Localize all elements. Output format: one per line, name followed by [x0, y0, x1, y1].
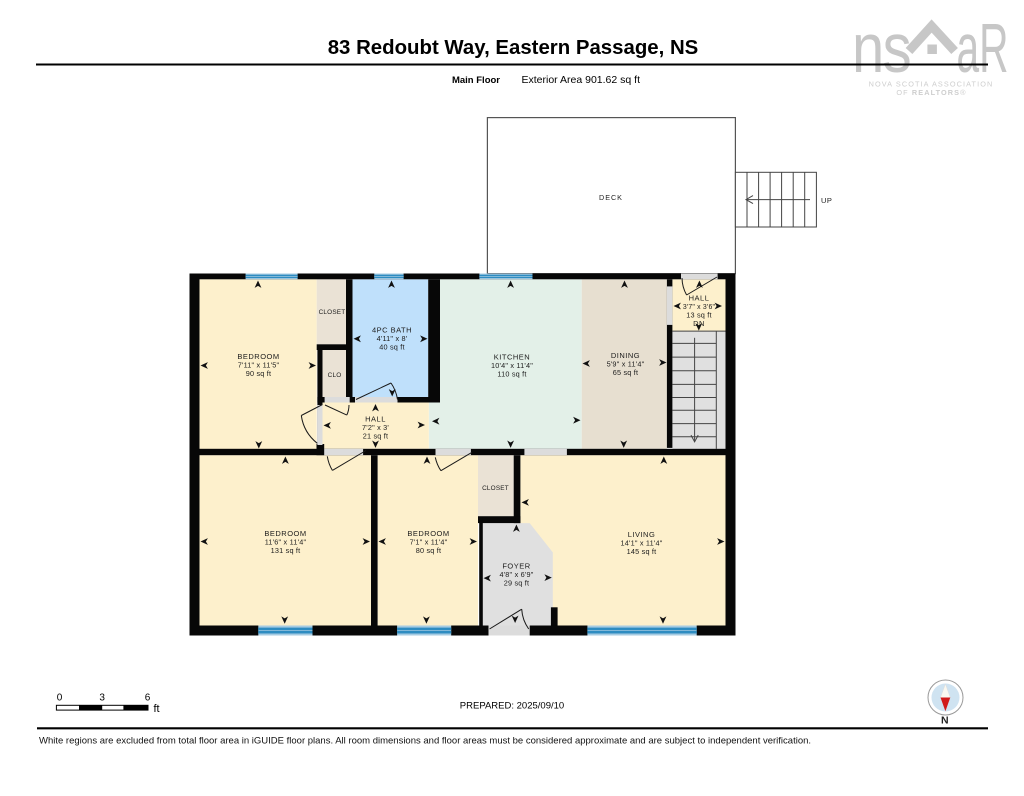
- svg-text:145 sq ft: 145 sq ft: [627, 547, 657, 556]
- svg-text:DECK: DECK: [599, 193, 623, 202]
- svg-text:21 sq ft: 21 sq ft: [363, 432, 389, 441]
- svg-text:CLO: CLO: [328, 372, 342, 379]
- svg-text:PREPARED: 2025/09/10: PREPARED: 2025/09/10: [460, 701, 564, 712]
- svg-text:110 sq ft: 110 sq ft: [497, 370, 526, 379]
- svg-text:CLOSET: CLOSET: [319, 309, 346, 316]
- svg-text:0: 0: [57, 693, 63, 704]
- svg-text:131 sq ft: 131 sq ft: [271, 546, 301, 555]
- svg-text:HALL: HALL: [689, 294, 710, 303]
- svg-text:29 sq ft: 29 sq ft: [504, 579, 530, 588]
- svg-text:CLOSET: CLOSET: [482, 485, 509, 492]
- svg-text:6: 6: [145, 693, 151, 704]
- svg-text:80 sq ft: 80 sq ft: [416, 546, 442, 555]
- svg-text:83 Redoubt Way, Eastern Passag: 83 Redoubt Way, Eastern Passage, NS: [328, 37, 699, 59]
- svg-text:UP: UP: [821, 196, 832, 205]
- svg-text:N: N: [941, 715, 949, 727]
- svg-text:Exterior Area 901.62 sq ft: Exterior Area 901.62 sq ft: [522, 74, 641, 86]
- svg-text:40 sq ft: 40 sq ft: [379, 343, 405, 352]
- svg-text:Main Floor: Main Floor: [452, 75, 500, 86]
- svg-text:3: 3: [99, 693, 105, 704]
- svg-text:90 sq ft: 90 sq ft: [246, 369, 272, 378]
- svg-text:13 sq ft: 13 sq ft: [686, 311, 712, 320]
- svg-text:aR: aR: [957, 9, 1009, 87]
- svg-text:OF REALTORS®: OF REALTORS®: [896, 88, 966, 97]
- svg-text:ns: ns: [852, 9, 910, 87]
- svg-text:ft: ft: [154, 703, 160, 715]
- svg-text:65 sq ft: 65 sq ft: [613, 368, 639, 377]
- svg-text:White regions are excluded fro: White regions are excluded from total fl…: [39, 736, 811, 747]
